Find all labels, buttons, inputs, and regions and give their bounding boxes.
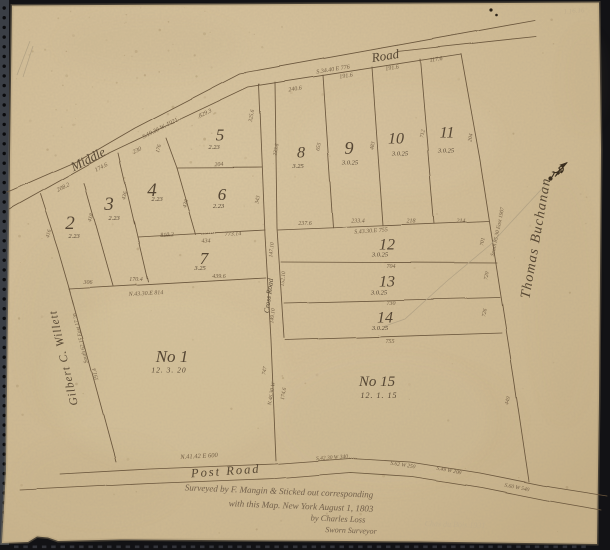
svg-text:2.23: 2.23 bbox=[108, 215, 120, 222]
svg-text:2: 2 bbox=[65, 213, 75, 234]
svg-text:6: 6 bbox=[218, 185, 227, 204]
svg-text:8: 8 bbox=[297, 145, 305, 162]
svg-text:No 15: No 15 bbox=[358, 374, 396, 390]
svg-text:747: 747 bbox=[260, 366, 268, 376]
svg-text:2.23: 2.23 bbox=[213, 203, 225, 210]
svg-text:3.0.25: 3.0.25 bbox=[437, 148, 455, 155]
svg-text:3.0.25: 3.0.25 bbox=[371, 252, 389, 259]
svg-text:12. 3. 20: 12. 3. 20 bbox=[151, 366, 186, 375]
svg-text:755: 755 bbox=[386, 339, 395, 345]
svg-text:204: 204 bbox=[466, 133, 474, 143]
svg-text:1.16.16: 1.16.16 bbox=[563, 6, 585, 15]
svg-text:810.2: 810.2 bbox=[160, 232, 174, 239]
svg-text:3.0.25: 3.0.25 bbox=[370, 290, 388, 297]
svg-text:233.4: 233.4 bbox=[351, 218, 365, 225]
svg-text:9: 9 bbox=[345, 138, 354, 158]
svg-text:No 1: No 1 bbox=[155, 347, 189, 366]
svg-text:773.14: 773.14 bbox=[225, 230, 242, 238]
svg-text:170.4: 170.4 bbox=[129, 276, 143, 283]
svg-text:3.0.25: 3.0.25 bbox=[371, 325, 389, 332]
svg-text:2.23: 2.23 bbox=[208, 144, 220, 151]
svg-text:3.0.25: 3.0.25 bbox=[341, 160, 359, 167]
svg-text:3: 3 bbox=[103, 194, 114, 215]
svg-text:237.6: 237.6 bbox=[298, 221, 312, 227]
svg-text:704: 704 bbox=[387, 263, 396, 270]
svg-text:14: 14 bbox=[377, 310, 393, 327]
svg-text:204: 204 bbox=[214, 161, 223, 168]
svg-text:3.25: 3.25 bbox=[291, 163, 304, 170]
svg-text:10: 10 bbox=[388, 131, 404, 148]
svg-text:13: 13 bbox=[379, 274, 395, 291]
svg-text:214: 214 bbox=[457, 218, 466, 225]
svg-text:5: 5 bbox=[216, 126, 225, 145]
svg-text:434: 434 bbox=[202, 238, 211, 245]
svg-text:11: 11 bbox=[440, 125, 455, 142]
svg-text:2.23: 2.23 bbox=[68, 233, 80, 240]
svg-text:218: 218 bbox=[407, 219, 416, 225]
svg-text:306: 306 bbox=[83, 280, 93, 286]
svg-text:Sworn Surveyor: Sworn Surveyor bbox=[325, 525, 377, 536]
svg-text:2.23: 2.23 bbox=[151, 196, 163, 203]
svg-text:by Charles Loss: by Charles Loss bbox=[310, 513, 366, 525]
svg-text:3.25: 3.25 bbox=[193, 265, 206, 272]
svg-text:483: 483 bbox=[368, 141, 376, 151]
svg-text:12. 1. 15: 12. 1. 15 bbox=[361, 391, 398, 400]
svg-text:439.6: 439.6 bbox=[212, 273, 226, 280]
svg-text:3.0.25: 3.0.25 bbox=[391, 151, 409, 158]
svg-text:730: 730 bbox=[387, 301, 396, 307]
